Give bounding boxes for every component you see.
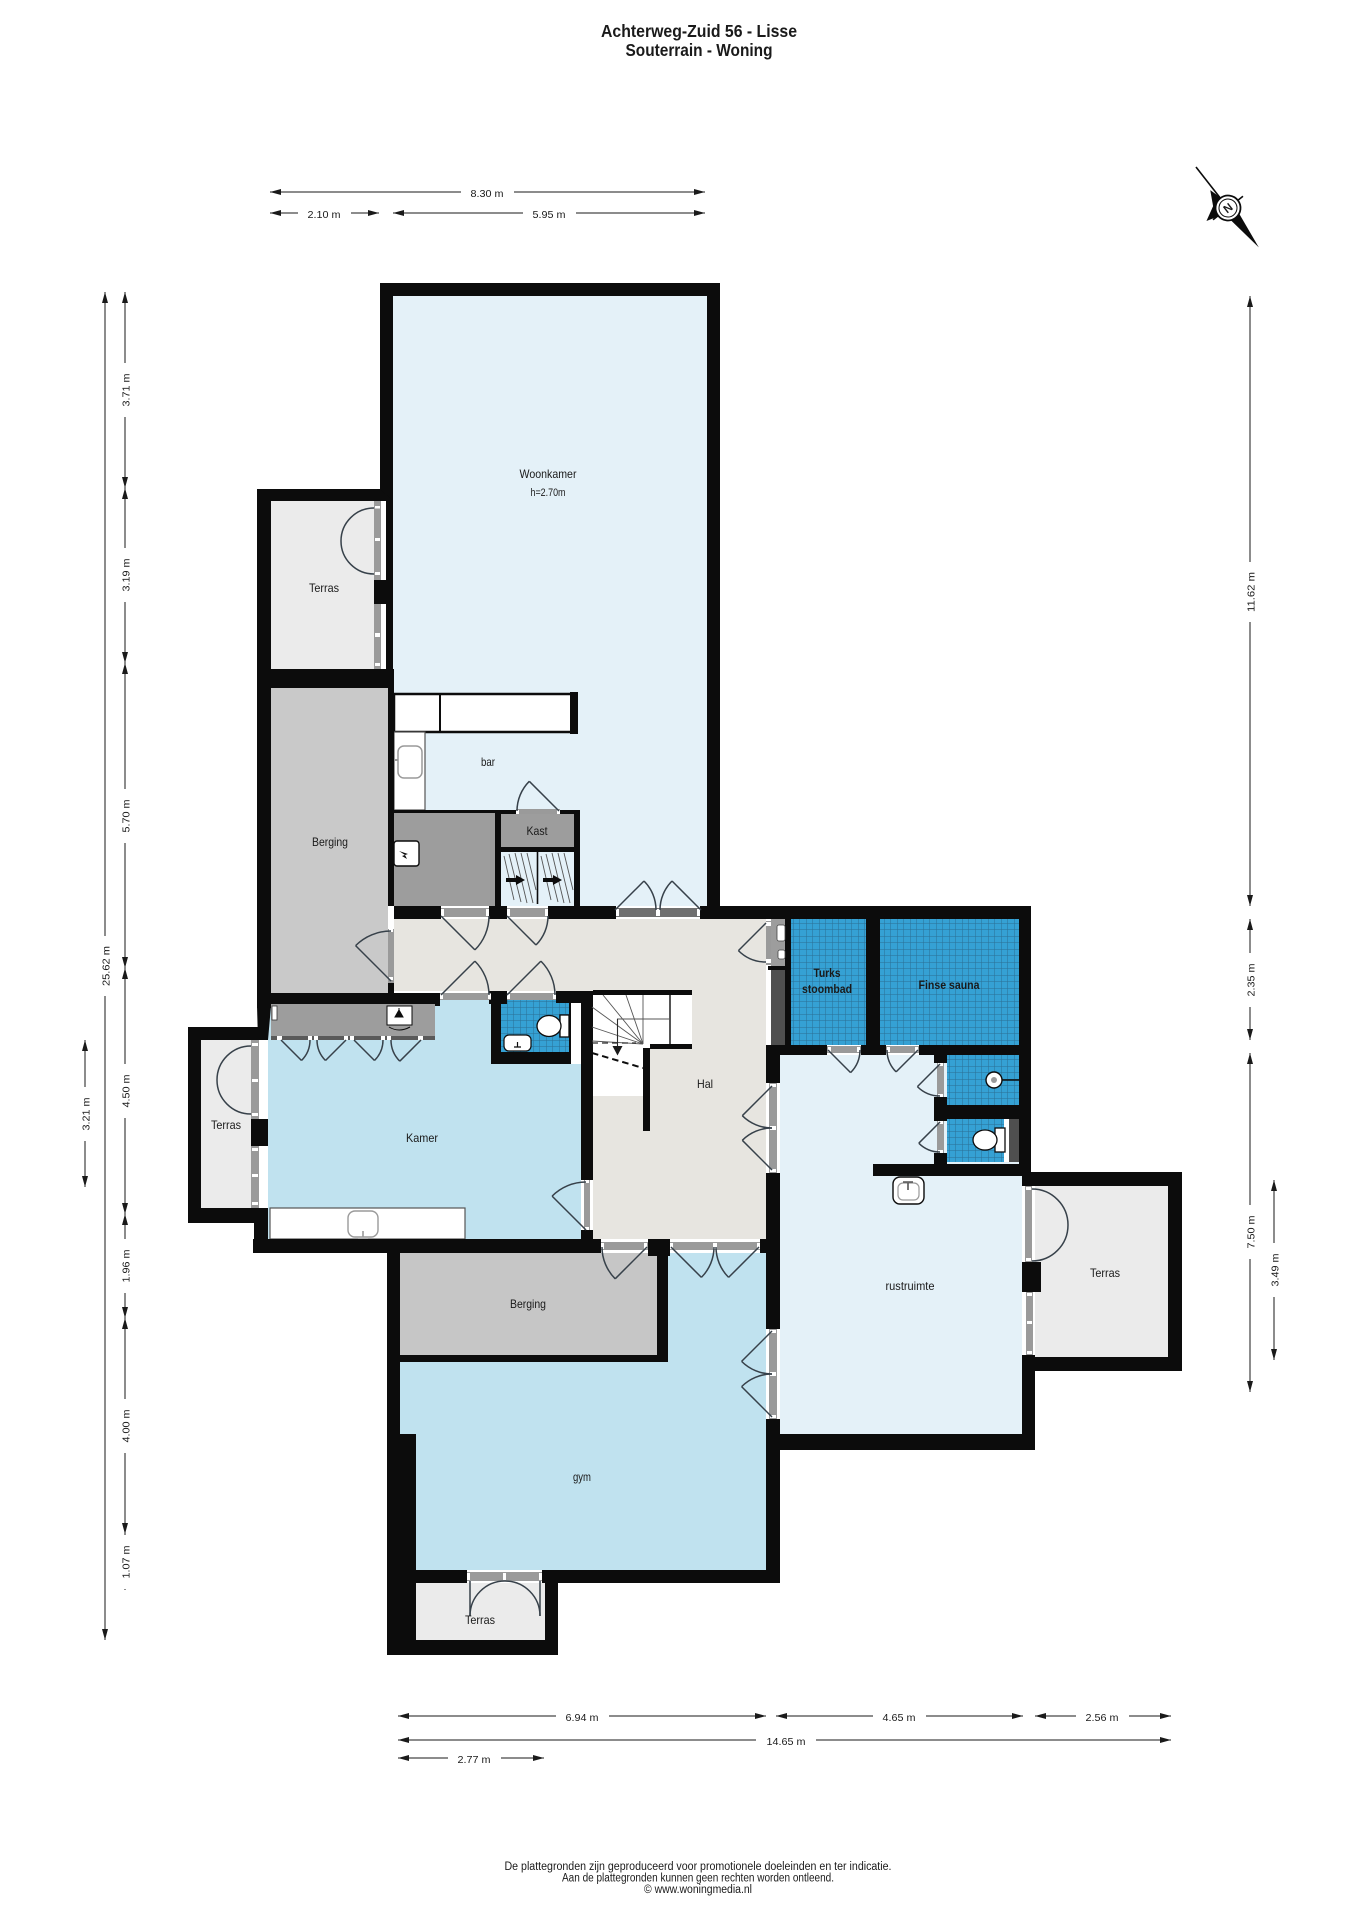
svg-text:2.35 m: 2.35 m	[1246, 963, 1258, 996]
svg-text:14.65 m: 14.65 m	[767, 1736, 806, 1748]
svg-text:stoombad: stoombad	[802, 982, 852, 996]
svg-text:Terras: Terras	[465, 1613, 495, 1627]
svg-text:6.94 m: 6.94 m	[566, 1712, 599, 1724]
svg-text:De plattegronden zijn geproduc: De plattegronden zijn geproduceerd voor …	[505, 1861, 892, 1873]
svg-text:4.00 m: 4.00 m	[121, 1409, 133, 1442]
svg-text:© www.woningmedia.nl: © www.woningmedia.nl	[644, 1884, 752, 1896]
svg-text:3.21 m: 3.21 m	[81, 1097, 93, 1130]
svg-text:Finse sauna: Finse sauna	[919, 978, 980, 992]
svg-text:rustruimte: rustruimte	[886, 1279, 935, 1293]
svg-text:Aan de plattegronden kunnen ge: Aan de plattegronden kunnen geen rechten…	[562, 1873, 834, 1885]
svg-text:Achterweg-Zuid 56 - Lisse: Achterweg-Zuid 56 - Lisse	[601, 21, 797, 41]
svg-text:Berging: Berging	[312, 835, 348, 849]
svg-text:Terras: Terras	[211, 1118, 241, 1132]
svg-text:Berging: Berging	[510, 1297, 546, 1311]
svg-text:5.95 m: 5.95 m	[533, 209, 566, 221]
svg-text:Souterrain - Woning: Souterrain - Woning	[626, 40, 773, 60]
svg-text:2.77 m: 2.77 m	[458, 1754, 491, 1766]
svg-text:1.96 m: 1.96 m	[121, 1249, 133, 1282]
svg-text:3.71 m: 3.71 m	[121, 373, 133, 406]
svg-text:gym: gym	[573, 1470, 591, 1484]
svg-text:Kast: Kast	[527, 824, 549, 838]
svg-text:7.50 m: 7.50 m	[1246, 1215, 1258, 1248]
svg-text:Terras: Terras	[1090, 1266, 1120, 1280]
svg-text:2.56 m: 2.56 m	[1086, 1712, 1119, 1724]
svg-text:4.65 m: 4.65 m	[883, 1712, 916, 1724]
svg-text:2.10 m: 2.10 m	[308, 209, 341, 221]
svg-text:Woonkamer: Woonkamer	[520, 467, 577, 481]
svg-text:bar: bar	[481, 755, 495, 769]
svg-text:25.62 m: 25.62 m	[101, 946, 113, 986]
svg-text:3.49 m: 3.49 m	[1270, 1253, 1282, 1286]
svg-text:1.07 m: 1.07 m	[121, 1545, 133, 1578]
svg-text:Kamer: Kamer	[406, 1131, 438, 1145]
svg-text:3.19 m: 3.19 m	[121, 558, 133, 591]
svg-text:Terras: Terras	[309, 581, 339, 595]
svg-text:11.62 m: 11.62 m	[1246, 572, 1258, 612]
svg-text:Turks: Turks	[814, 966, 841, 980]
svg-text:h=2.70m: h=2.70m	[531, 487, 566, 499]
svg-text:8.30 m: 8.30 m	[471, 188, 504, 200]
svg-text:Hal: Hal	[697, 1077, 713, 1091]
svg-text:4.50 m: 4.50 m	[121, 1074, 133, 1107]
svg-text:5.70 m: 5.70 m	[121, 799, 133, 832]
